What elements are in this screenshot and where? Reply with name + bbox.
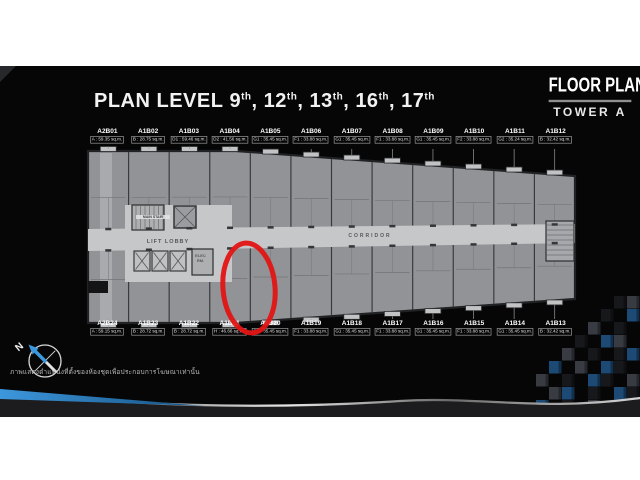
unit-area: D2 : 41.56 sq.m. <box>211 136 248 144</box>
unit-area: F1 : 33.88 sq.m. <box>375 328 411 336</box>
unit-name: A1B07 <box>342 128 362 136</box>
unit-label-a1b13: A1B13B : 32.42 sq.m. <box>535 320 576 338</box>
unit-name: A1B09 <box>423 128 443 136</box>
main-stair-label: MAIN STAIR <box>136 215 170 219</box>
unit-area: G1 : 35.45 sq.m. <box>252 328 289 336</box>
unit-name: A1B10 <box>464 128 484 136</box>
unit-label-a1b12: A1B12B : 32.42 sq.m. <box>535 128 576 146</box>
unit-area: B : 28.75 sq.m. <box>131 136 165 144</box>
lift-lobby-label: LIFT LOBBY <box>130 239 206 245</box>
unit-name: A1B16 <box>423 320 443 328</box>
unit-label-a1b18: A1B18G1 : 35.45 sq.m. <box>332 320 373 338</box>
unit-label-a1b14: A1B14G1 : 35.45 sq.m. <box>495 320 536 338</box>
unit-area: A : 59.35 sq.m. <box>91 136 124 144</box>
corridor-label: CORRIDOR <box>330 233 410 239</box>
unit-name: A1B17 <box>383 320 403 328</box>
unit-area: F1 : 33.88 sq.m. <box>293 136 329 144</box>
unit-label-a1b09: A1B09G1 : 35.45 sq.m. <box>413 128 454 146</box>
unit-label-a1b08: A1B08F1 : 33.88 sq.m. <box>372 128 413 146</box>
unit-area: G1 : 35.45 sq.m. <box>415 328 452 336</box>
unit-area: G2 : 35.24 sq.m. <box>497 136 534 144</box>
unit-label-a1b06: A1B06F1 : 33.88 sq.m. <box>291 128 332 146</box>
unit-name: A1B22 <box>179 320 199 328</box>
unit-name: A1B12 <box>546 128 566 136</box>
left-shaft <box>88 281 108 293</box>
unit-name: A1B23 <box>138 320 158 328</box>
unit-area: A : 59.15 sq.m. <box>91 328 124 336</box>
unit-label-a1b23: A1B23B : 28.72 sq.m. <box>128 320 169 338</box>
unit-name: A1B21 <box>220 320 240 328</box>
plan-level-numbers: 9th, 12th, 13th, 16th, 17th <box>229 90 434 112</box>
floorplan-graphic: N <box>0 0 640 480</box>
unit-area: F1 : 33.88 sq.m. <box>375 136 411 144</box>
unit-label-a1b20: A1B20G1 : 35.45 sq.m. <box>250 320 291 338</box>
unit-name: A1B11 <box>505 128 525 136</box>
unit-area: G1 : 35.45 sq.m. <box>334 136 371 144</box>
unit-label-a1b19: A1B19F1 : 33.88 sq.m. <box>291 320 332 338</box>
unit-area: H : 46.66 sq.m. <box>213 328 247 336</box>
brand-tower: TOWER A <box>543 105 637 119</box>
elec-room-label: ELEC RM. <box>192 254 209 263</box>
unit-area: B : 28.72 sq.m. <box>131 328 165 336</box>
unit-name: A1B08 <box>383 128 403 136</box>
unit-label-a1b07: A1B07G1 : 35.45 sq.m. <box>332 128 373 146</box>
unit-name: A2B24 <box>97 320 117 328</box>
unit-name: A1B20 <box>260 320 280 328</box>
unit-name: A1B15 <box>464 320 484 328</box>
unit-name: A1B03 <box>179 128 199 136</box>
unit-area: G1 : 35.45 sq.m. <box>334 328 371 336</box>
unit-area: D1 : 59.46 sq.m. <box>171 136 208 144</box>
unit-label-a1b16: A1B16G1 : 35.45 sq.m. <box>413 320 454 338</box>
unit-area: F1 : 33.88 sq.m. <box>293 328 329 336</box>
unit-area: G1 : 35.45 sq.m. <box>497 328 534 336</box>
unit-label-a1b11: A1B11G2 : 35.24 sq.m. <box>495 128 536 146</box>
unit-area: G1 : 35.45 sq.m. <box>415 136 452 144</box>
unit-area: G1 : 35.45 sq.m. <box>252 136 289 144</box>
unit-label-a1b03: A1B03D1 : 59.46 sq.m. <box>169 128 210 146</box>
unit-area: B : 32.42 sq.m. <box>539 136 573 144</box>
unit-name: A1B05 <box>260 128 280 136</box>
unit-name: A1B04 <box>220 128 240 136</box>
unit-name: A1B06 <box>301 128 321 136</box>
unit-labels-bottom: A2B24A : 59.15 sq.m.A1B23B : 28.72 sq.m.… <box>87 320 576 338</box>
plan-level-title: PLAN LEVEL9th, 12th, 13th, 16th, 17th <box>94 90 435 113</box>
unit-area: F1 : 33.88 sq.m. <box>456 328 492 336</box>
page: N PLAN LEVEL9th, 12th, 13th, 16th, 17th … <box>0 0 640 480</box>
unit-label-a1b17: A1B17F1 : 33.88 sq.m. <box>372 320 413 338</box>
unit-label-a1b02: A1B02B : 28.75 sq.m. <box>128 128 169 146</box>
unit-label-a1b15: A1B15F1 : 33.88 sq.m. <box>454 320 495 338</box>
unit-label-a1b05: A1B05G1 : 35.45 sq.m. <box>250 128 291 146</box>
thai-disclaimer: ภาพแสดงตำแหน่งที่ตั้งของห้องชุดเพื่อประก… <box>10 367 200 377</box>
elevators <box>134 251 186 271</box>
unit-label-a1b04: A1B04D2 : 41.56 sq.m. <box>209 128 250 146</box>
unit-label-a1b22: A1B22B : 28.72 sq.m. <box>169 320 210 338</box>
unit-area: F2 : 33.88 sq.m. <box>456 136 492 144</box>
unit-area: B : 28.72 sq.m. <box>172 328 206 336</box>
unit-name: A1B13 <box>546 320 566 328</box>
unit-name: A1B14 <box>505 320 525 328</box>
unit-label-a1b21: A1B21H : 46.66 sq.m. <box>209 320 250 338</box>
unit-labels-top: A2B01A : 59.35 sq.m.A1B02B : 28.75 sq.m.… <box>87 128 576 146</box>
brand-block: FLOOR PLAN TOWER A <box>543 76 637 119</box>
unit-name: A1B19 <box>301 320 321 328</box>
unit-name: A1B02 <box>138 128 158 136</box>
unit-label-a2b24: A2B24A : 59.15 sq.m. <box>87 320 128 338</box>
unit-label-a1b10: A1B10F2 : 33.88 sq.m. <box>454 128 495 146</box>
unit-name: A2B01 <box>97 128 117 136</box>
brand-floor-plan: FLOOR PLAN <box>549 74 632 102</box>
unit-area: B : 32.42 sq.m. <box>539 328 573 336</box>
unit-name: A1B18 <box>342 320 362 328</box>
plan-level-prefix: PLAN LEVEL <box>94 90 223 112</box>
unit-label-a2b01: A2B01A : 59.35 sq.m. <box>87 128 128 146</box>
